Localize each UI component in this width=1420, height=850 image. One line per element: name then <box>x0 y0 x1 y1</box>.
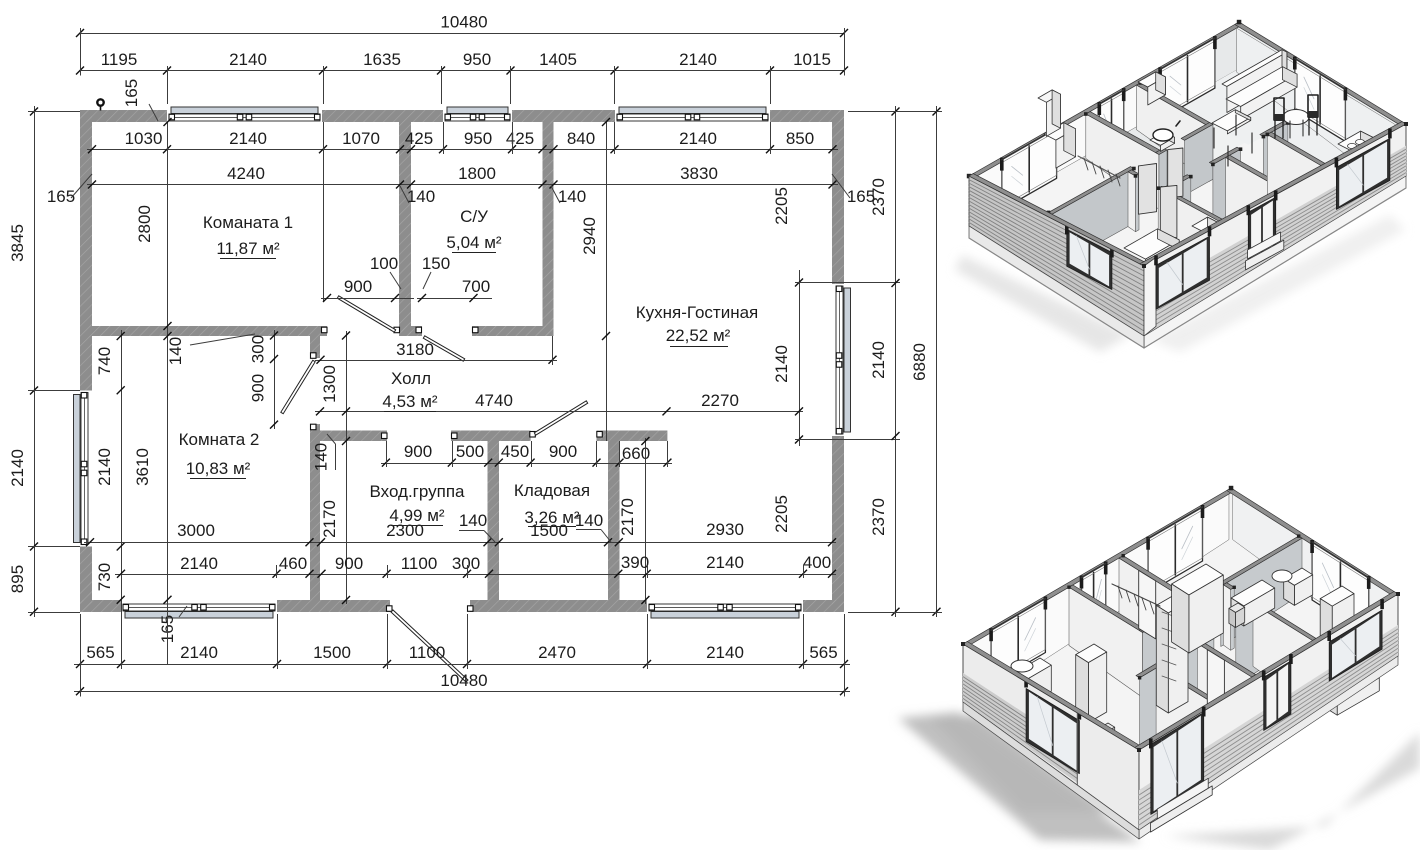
svg-text:1195: 1195 <box>101 50 138 69</box>
svg-text:140: 140 <box>407 187 435 206</box>
svg-text:500: 500 <box>456 442 484 461</box>
svg-text:2370: 2370 <box>869 178 888 216</box>
svg-text:1100: 1100 <box>409 643 446 662</box>
svg-text:2140: 2140 <box>95 448 114 486</box>
svg-text:4740: 4740 <box>475 391 513 410</box>
svg-text:1100: 1100 <box>401 554 438 573</box>
svg-text:Комната 2: Комната 2 <box>179 430 260 449</box>
svg-text:900: 900 <box>404 442 432 461</box>
svg-text:730: 730 <box>95 563 114 591</box>
svg-text:2140: 2140 <box>229 129 267 148</box>
svg-text:1405: 1405 <box>539 50 577 69</box>
svg-text:2370: 2370 <box>869 498 888 536</box>
svg-text:1070: 1070 <box>342 129 380 148</box>
svg-text:3180: 3180 <box>396 340 434 359</box>
svg-text:2170: 2170 <box>618 498 637 536</box>
svg-text:С/У: С/У <box>460 207 488 226</box>
svg-text:2140: 2140 <box>8 449 27 487</box>
svg-text:400: 400 <box>803 553 831 572</box>
svg-text:Вход.группа: Вход.группа <box>369 482 465 501</box>
svg-text:2140: 2140 <box>772 345 791 383</box>
svg-text:3830: 3830 <box>680 164 718 183</box>
svg-text:11,87 м²: 11,87 м² <box>216 239 280 258</box>
svg-text:950: 950 <box>464 129 492 148</box>
svg-text:140: 140 <box>459 511 487 530</box>
svg-text:22,52 м²: 22,52 м² <box>666 326 731 345</box>
svg-text:900: 900 <box>549 442 577 461</box>
svg-text:300: 300 <box>249 335 268 363</box>
svg-text:895: 895 <box>8 565 27 593</box>
svg-text:2930: 2930 <box>706 520 744 539</box>
svg-text:2140: 2140 <box>180 643 218 662</box>
svg-text:165: 165 <box>47 187 75 206</box>
svg-text:425: 425 <box>506 129 534 148</box>
svg-text:165: 165 <box>122 79 141 107</box>
svg-text:950: 950 <box>463 50 491 69</box>
svg-text:10480: 10480 <box>440 13 487 32</box>
svg-text:Кладовая: Кладовая <box>514 481 590 500</box>
svg-text:2170: 2170 <box>320 500 339 538</box>
svg-text:1300: 1300 <box>320 365 339 403</box>
svg-text:150: 150 <box>422 254 450 273</box>
svg-text:4,53 м²: 4,53 м² <box>382 392 437 411</box>
svg-text:5,04 м²: 5,04 м² <box>446 233 501 252</box>
svg-text:140: 140 <box>558 187 586 206</box>
svg-text:840: 840 <box>567 129 595 148</box>
svg-text:565: 565 <box>86 643 114 662</box>
svg-text:1015: 1015 <box>793 50 831 69</box>
svg-text:2270: 2270 <box>701 391 739 410</box>
svg-text:3610: 3610 <box>133 448 152 486</box>
svg-text:2470: 2470 <box>538 643 576 662</box>
svg-text:460: 460 <box>279 554 307 573</box>
svg-text:3845: 3845 <box>8 224 27 262</box>
svg-text:740: 740 <box>95 347 114 375</box>
svg-text:390: 390 <box>621 553 649 572</box>
svg-text:565: 565 <box>809 643 837 662</box>
svg-text:1800: 1800 <box>458 164 496 183</box>
svg-text:300: 300 <box>452 554 480 573</box>
svg-text:4,99 м²: 4,99 м² <box>389 506 444 525</box>
svg-text:2140: 2140 <box>229 50 267 69</box>
svg-text:140: 140 <box>312 443 331 471</box>
svg-text:2800: 2800 <box>135 205 154 243</box>
svg-text:100: 100 <box>370 254 398 273</box>
svg-text:425: 425 <box>405 129 433 148</box>
svg-text:2140: 2140 <box>706 553 744 572</box>
svg-text:2940: 2940 <box>580 217 599 255</box>
svg-text:3,26 м²: 3,26 м² <box>524 508 579 527</box>
svg-text:10,83 м²: 10,83 м² <box>186 459 251 478</box>
svg-text:1635: 1635 <box>363 50 401 69</box>
svg-text:1030: 1030 <box>125 129 163 148</box>
svg-text:2140: 2140 <box>706 643 744 662</box>
svg-text:900: 900 <box>344 277 372 296</box>
svg-text:10480: 10480 <box>440 671 487 690</box>
svg-text:2205: 2205 <box>772 495 791 533</box>
svg-text:2205: 2205 <box>772 187 791 225</box>
svg-text:2140: 2140 <box>679 129 717 148</box>
svg-text:4240: 4240 <box>227 164 265 183</box>
svg-text:900: 900 <box>335 554 363 573</box>
svg-text:2140: 2140 <box>679 50 717 69</box>
svg-text:2140: 2140 <box>180 554 218 573</box>
svg-text:6880: 6880 <box>910 343 929 381</box>
svg-text:450: 450 <box>501 442 529 461</box>
svg-text:2140: 2140 <box>869 341 888 379</box>
svg-text:Команата 1: Команата 1 <box>203 213 293 232</box>
svg-text:Холл: Холл <box>391 369 431 388</box>
svg-text:700: 700 <box>462 277 490 296</box>
svg-text:850: 850 <box>786 129 814 148</box>
svg-text:900: 900 <box>249 374 268 402</box>
svg-text:3000: 3000 <box>177 521 215 540</box>
svg-text:140: 140 <box>166 337 185 365</box>
svg-text:Кухня-Гостиная: Кухня-Гостиная <box>636 303 759 322</box>
svg-text:1500: 1500 <box>313 643 351 662</box>
